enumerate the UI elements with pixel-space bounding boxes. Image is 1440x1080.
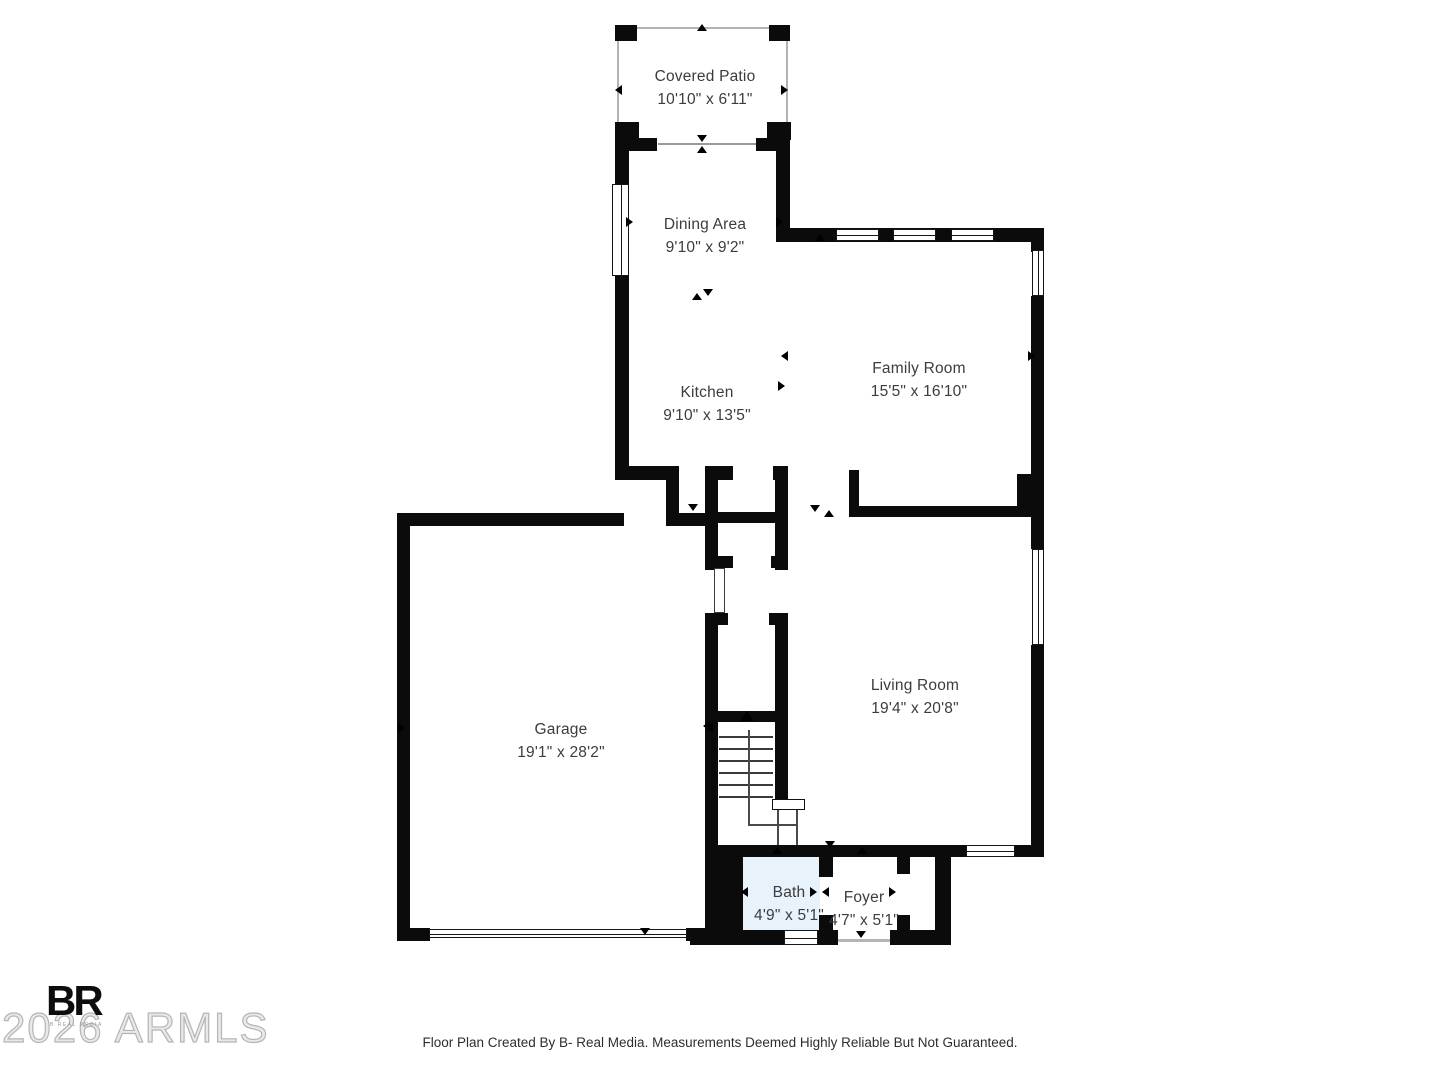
wall-segment <box>718 512 788 523</box>
room-name: Garage <box>451 719 671 742</box>
dimension-arrow-icon <box>697 24 707 31</box>
footer-disclaimer: Floor Plan Created By B- Real Media. Mea… <box>0 1035 1440 1050</box>
room-label-garage: Garage 19'1" x 28'2" <box>451 719 671 765</box>
wall-segment <box>705 466 718 570</box>
wall-segment <box>769 25 790 41</box>
plan-line <box>719 748 773 750</box>
window <box>966 845 1015 857</box>
window <box>951 229 994 241</box>
dimension-arrow-icon <box>857 847 867 854</box>
plan-line <box>796 806 798 845</box>
room-name: Dining Area <box>595 214 815 237</box>
wall-segment <box>1031 511 1044 549</box>
plan-line <box>748 730 750 826</box>
room-label-living-room: Living Room 19'4" x 20'8" <box>805 675 1025 721</box>
wall-segment <box>705 466 733 480</box>
plan-line <box>719 784 773 786</box>
dimension-arrow-icon <box>692 293 702 300</box>
wall-segment <box>615 25 637 41</box>
plan-line <box>719 736 773 738</box>
window <box>893 229 936 241</box>
dimension-arrow-icon <box>640 928 650 935</box>
wall-segment <box>397 928 430 941</box>
dimension-arrow-icon <box>703 289 713 296</box>
plan-line <box>777 806 779 845</box>
window-pane-line <box>1038 251 1039 295</box>
room-dims: 10'10" x 6'11" <box>595 89 815 112</box>
window <box>836 229 879 241</box>
room-label-covered-patio: Covered Patio 10'10" x 6'11" <box>595 66 815 112</box>
wall-segment <box>1031 296 1044 474</box>
plan-line <box>719 772 773 774</box>
dimension-arrow-icon <box>703 721 710 731</box>
dimension-arrow-icon <box>1028 351 1035 361</box>
room-dims: 15'5" x 16'10" <box>809 381 1029 404</box>
wall-segment <box>849 470 859 510</box>
wall-segment <box>666 480 679 515</box>
room-name: Covered Patio <box>595 66 815 89</box>
room-dims: 9'10" x 13'5" <box>597 405 817 428</box>
plan-line <box>748 824 798 826</box>
stair-rail <box>772 799 805 810</box>
window <box>1032 250 1044 296</box>
br-logo-subtext: B REAL MEDIA <box>50 1022 103 1028</box>
wall-segment <box>615 151 629 184</box>
room-label-family-room: Family Room 15'5" x 16'10" <box>809 358 1029 404</box>
wall-segment <box>1031 645 1044 847</box>
room-dims: 19'1" x 28'2" <box>451 742 671 765</box>
room-name: Kitchen <box>597 382 817 405</box>
wall-segment <box>705 613 728 625</box>
room-label-dining-area: Dining Area 9'10" x 9'2" <box>595 214 815 260</box>
wall-segment <box>615 276 629 467</box>
dimension-arrow-icon <box>697 135 707 142</box>
dimension-arrow-icon <box>398 723 405 733</box>
room-dims: 4'7" x 5'1" <box>754 910 974 933</box>
window <box>1032 549 1044 645</box>
room-dims: 19'4" x 20'8" <box>805 698 1025 721</box>
wall-segment <box>615 466 679 480</box>
dimension-arrow-icon <box>824 510 834 517</box>
wall-segment <box>775 711 788 805</box>
room-name: Family Room <box>809 358 1029 381</box>
wall-segment <box>718 556 733 568</box>
dimension-arrow-icon <box>740 711 754 721</box>
br-logo: BR <box>46 980 101 1022</box>
plan-line <box>658 143 756 145</box>
window-pane-line <box>967 851 1014 852</box>
dimension-arrow-icon <box>825 841 835 848</box>
wall-segment <box>897 857 910 874</box>
garage-entry-door-leaf <box>714 568 725 613</box>
dimension-arrow-icon <box>815 234 825 241</box>
wall-segment <box>849 506 1031 517</box>
room-label-kitchen: Kitchen 9'10" x 13'5" <box>597 382 817 428</box>
room-name: Living Room <box>805 675 1025 698</box>
dimension-arrow-icon <box>772 847 782 854</box>
window-pane-line <box>785 938 817 939</box>
window-pane-line <box>837 235 878 236</box>
room-dims: 9'10" x 9'2" <box>595 237 815 260</box>
dimension-arrow-icon <box>781 351 788 361</box>
window-pane-line <box>894 235 935 236</box>
plan-line <box>719 760 773 762</box>
room-name: Foyer <box>754 887 974 910</box>
plan-line <box>719 796 773 798</box>
dimension-arrow-icon <box>810 505 820 512</box>
wall-segment <box>771 556 788 568</box>
plan-line <box>838 939 890 942</box>
floor-plan-canvas: Covered Patio 10'10" x 6'11" Dining Area… <box>0 0 1440 1080</box>
wall-segment <box>775 613 788 713</box>
wall-segment <box>397 513 624 526</box>
window-pane-line <box>952 235 993 236</box>
wall-segment <box>615 138 657 151</box>
dimension-arrow-icon <box>697 146 707 153</box>
wall-segment <box>756 138 790 151</box>
dimension-arrow-icon <box>688 504 698 511</box>
window-pane-line <box>1038 550 1039 644</box>
wall-segment <box>819 857 833 877</box>
room-label-foyer: Foyer 4'7" x 5'1" <box>754 887 974 933</box>
